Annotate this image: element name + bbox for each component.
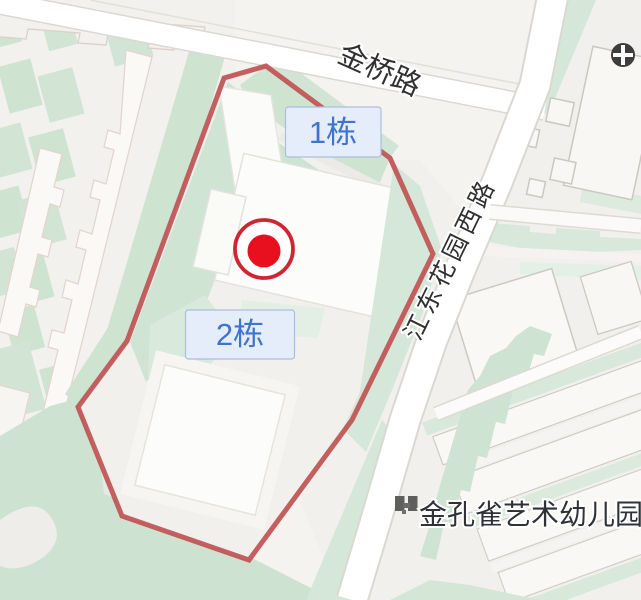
svg-text:金孔雀艺术幼儿园: 金孔雀艺术幼儿园 <box>419 499 641 530</box>
svg-text:1栋: 1栋 <box>309 115 357 150</box>
svg-text:2栋: 2栋 <box>216 317 264 352</box>
